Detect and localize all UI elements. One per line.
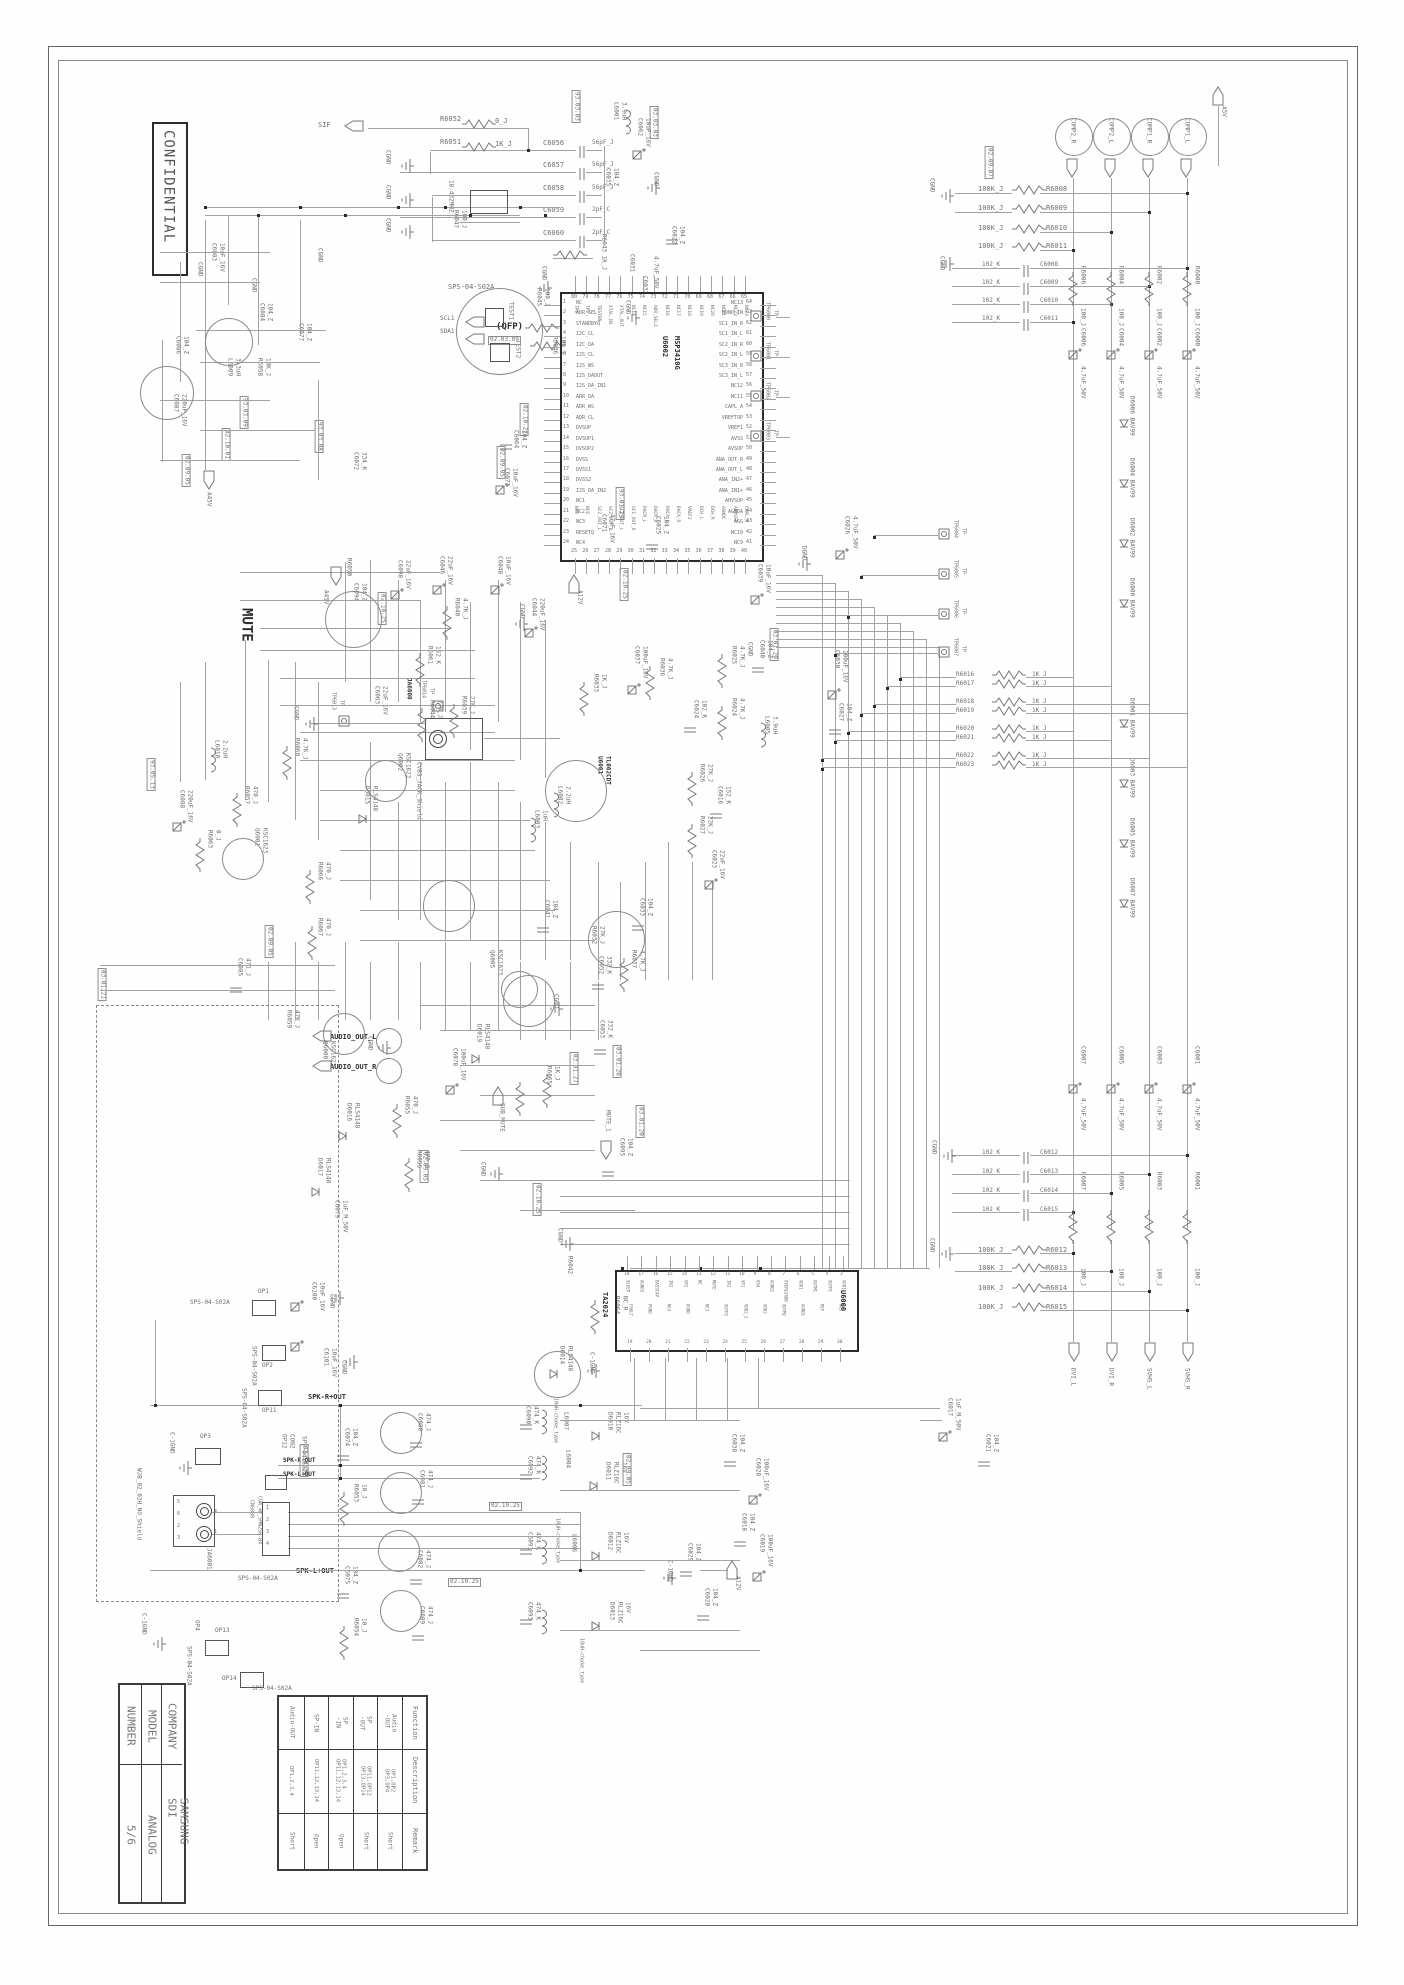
wire: [1030, 1155, 1187, 1156]
pin-stub: [641, 1256, 642, 1270]
component-label: 100_J: [1079, 308, 1086, 326]
resistor-icon: [1182, 272, 1192, 306]
diode-icon: [1118, 778, 1130, 790]
component-label: 4.7uF_50V: [1193, 1098, 1200, 1131]
component-label: CGND: [250, 278, 257, 292]
component-label: VSA: [755, 1280, 759, 1287]
component-label: CGND: [479, 1162, 486, 1176]
component-label: 28: [799, 1340, 804, 1345]
wire: [952, 1174, 1020, 1175]
pin-stub: [760, 493, 776, 494]
component-circle: [200, 1530, 209, 1539]
ground-icon: [558, 1236, 574, 1252]
test-point-icon: [338, 715, 350, 727]
component-label: 53: [746, 415, 752, 421]
pin-stub: [700, 276, 701, 292]
component-label: NC6: [584, 506, 589, 514]
junction-dot: [299, 206, 302, 209]
component-circle: [365, 760, 407, 802]
component-label: 49: [746, 457, 752, 463]
component-label: SC2_OUT_R: [607, 506, 612, 530]
junction-dot: [469, 214, 472, 217]
wire: [776, 583, 835, 584]
wire: [1026, 758, 1149, 759]
component-label: C6072: [352, 452, 359, 470]
component-label: NC22: [732, 305, 737, 316]
component-label: C6031: [628, 254, 635, 272]
component-label: 38: [718, 549, 724, 555]
wire: [835, 740, 956, 741]
component-label: OUTM1: [812, 1280, 816, 1292]
pin-stub: [575, 276, 576, 292]
component-label: C6090: [524, 1406, 531, 1424]
pin-stub: [711, 558, 712, 574]
resistor-icon: [339, 1492, 349, 1526]
component-label: C6088: [178, 790, 185, 808]
date-stamp: 02.10.22: [520, 403, 529, 436]
component-circle: [378, 1530, 420, 1572]
pin-stub: [632, 276, 633, 292]
component-label: RLZ16C: [616, 1602, 623, 1624]
component-label: DVSS: [576, 458, 588, 464]
component-label: D6012: [606, 1532, 613, 1550]
ground-icon: [176, 1460, 192, 1476]
resistor-icon: [687, 772, 697, 806]
component-label: 9: [563, 383, 566, 389]
wire: [180, 682, 181, 782]
component-label: 56pF_J: [592, 140, 614, 147]
component-label: CGND: [384, 150, 391, 164]
component-label: 104_Z: [266, 303, 273, 321]
component-label: 22: [684, 1340, 689, 1345]
component-label: 104_Z: [182, 336, 189, 354]
pin-stub: [627, 1256, 628, 1270]
junction-dot: [873, 536, 876, 539]
polar-capacitor-icon: [627, 683, 641, 695]
signal-flag-icon: [600, 1140, 612, 1160]
component-label: NC23: [743, 305, 748, 316]
capacitor-icon: [734, 1540, 746, 1548]
wire: [776, 615, 887, 616]
component-label: 11: [725, 1272, 730, 1277]
component-label: 28: [605, 549, 611, 555]
resistor-icon: [1144, 272, 1154, 306]
component-label: VDD2: [762, 1304, 766, 1314]
resistor-icon: [282, 746, 292, 780]
junction-dot: [519, 206, 522, 209]
pin-stub: [620, 276, 621, 292]
wire: [955, 212, 1012, 213]
component-label: OUTP1: [827, 1280, 831, 1292]
component-label: CGND: [384, 185, 391, 199]
date-stamp: 93.03.03: [572, 90, 581, 123]
component-label: 27: [594, 549, 600, 555]
resistor-icon: [339, 1626, 349, 1660]
component-label: NC16: [664, 305, 669, 316]
component-label: 0_J: [214, 830, 221, 841]
pin-stub: [586, 276, 587, 292]
component-label: CGND: [930, 1140, 937, 1154]
pin-stub: [544, 326, 560, 327]
component-label: 72: [662, 295, 668, 301]
resistor-icon: [542, 1074, 552, 1108]
resistor-icon: [1012, 224, 1046, 234]
pin-stub: [700, 558, 701, 574]
component-label: DVSUP: [576, 426, 591, 432]
component-label: SVHS_R: [1183, 1368, 1190, 1390]
wire: [498, 580, 499, 722]
pin-stub: [656, 1256, 657, 1270]
resistor-icon: [1012, 1302, 1046, 1312]
component-label: VREF2: [686, 506, 691, 520]
component-label: R6033: [592, 674, 599, 692]
pin-stub: [734, 558, 735, 574]
component-circle: [325, 591, 382, 648]
wire: [1026, 713, 1187, 714]
component-label: 3: [840, 1272, 843, 1277]
component-label: VP1: [740, 1280, 744, 1287]
pin-stub: [598, 558, 599, 574]
wire: [560, 1228, 850, 1229]
pin-stub: [598, 276, 599, 292]
component-label: 55: [746, 394, 752, 400]
junction-dot: [527, 149, 530, 152]
component-label: R6023: [956, 762, 974, 769]
component-label: 17: [563, 467, 569, 473]
polar-capacitor-icon: [752, 1570, 766, 1582]
component-label: R6054: [352, 1618, 359, 1636]
ground-icon: [584, 1363, 600, 1379]
component-box: [240, 1672, 264, 1688]
pin-stub: [760, 441, 776, 442]
component-label: 4.7uF_50V: [1079, 1098, 1086, 1131]
capacitor-icon: [537, 926, 549, 934]
diode-icon: [470, 1053, 482, 1065]
junction-dot: [1110, 231, 1113, 234]
component-label: 1uF_M_50V: [341, 1200, 348, 1233]
component-circle: [1131, 118, 1169, 156]
component-label: NC9: [734, 541, 743, 547]
wire: [1040, 1271, 1111, 1272]
component-label: DACA_R: [675, 506, 680, 522]
capacitor-icon: [520, 1548, 532, 1556]
component-label: 29: [818, 1340, 823, 1345]
component-label: R6001: [1193, 1172, 1200, 1190]
resistor-icon: [515, 1082, 525, 1116]
component-label: AGND3: [639, 1280, 643, 1292]
diode-icon: [1118, 898, 1130, 910]
capacitor-icon: [752, 666, 764, 674]
component-circle: [1055, 118, 1093, 156]
component-label: ADR_CL: [576, 416, 594, 422]
component-label: 74: [639, 295, 645, 301]
component-label: R6051: [440, 139, 461, 147]
wire: [861, 575, 938, 576]
component-label: 10uF_16V: [764, 564, 771, 593]
component-label: DVSS1: [576, 468, 591, 474]
pin-stub: [829, 1256, 830, 1270]
resistor-icon: [579, 682, 589, 716]
junction-dot: [579, 1404, 582, 1407]
polar-capacitor-icon: [1106, 348, 1120, 360]
pin-stub: [544, 347, 560, 348]
component-label: TP6006: [952, 600, 958, 618]
wire: [345, 942, 346, 1020]
component-label: NC5: [573, 506, 578, 514]
component-label: 25: [742, 1340, 747, 1345]
wire: [498, 782, 499, 960]
component-label: AGND1: [800, 1304, 804, 1316]
resistor-icon: [1012, 185, 1046, 195]
signal-flag-icon: [1106, 1342, 1118, 1362]
pin-stub: [544, 409, 560, 410]
pin-stub: [609, 276, 610, 292]
component-label: DACM_L: [641, 506, 646, 522]
wire: [560, 1244, 850, 1245]
wire: [1030, 1174, 1149, 1175]
resistor-icon: [992, 760, 1026, 770]
component-label: 4.7K_J: [738, 646, 745, 668]
wire: [776, 575, 822, 576]
junction-dot: [1186, 267, 1189, 270]
wire: [926, 639, 927, 1268]
component-label: 4.7uF_50V: [1193, 366, 1200, 399]
component-label: 1: [563, 300, 566, 306]
capacitor-icon: [1022, 1171, 1030, 1183]
ground-icon: [487, 1166, 503, 1182]
component-label: 75: [628, 295, 634, 301]
capacitor-icon: [1022, 283, 1030, 295]
inductor-icon: [527, 818, 537, 844]
ground-icon: [938, 188, 954, 204]
wire: [586, 240, 602, 241]
pin-stub: [760, 430, 776, 431]
component-label: R6057: [243, 786, 250, 804]
pin-stub: [760, 378, 776, 379]
component-label: 62: [746, 321, 752, 327]
component-label: TP6002: [764, 382, 770, 400]
pin-stub: [544, 514, 560, 515]
wire: [520, 1210, 635, 1211]
wire: [260, 650, 475, 651]
component-label: R6052: [440, 116, 461, 124]
polar-capacitor-icon: [827, 688, 841, 700]
component-label: VP2: [683, 1280, 687, 1287]
resistor-icon: [1182, 1210, 1192, 1244]
wire: [318, 380, 319, 480]
component-label: 4.7uF_50V: [1155, 366, 1162, 399]
pin-stub: [668, 1348, 669, 1362]
component-label: 51: [746, 436, 752, 442]
component-label: 70: [684, 295, 690, 301]
component-label: 37: [707, 549, 713, 555]
pin-stub: [654, 276, 655, 292]
pin-stub: [544, 336, 560, 337]
component-label: 1K_J: [553, 1066, 560, 1080]
component-circle: [205, 318, 253, 366]
component-label: 100K_J: [978, 1304, 1003, 1312]
component-label: AHVSST: [732, 506, 737, 522]
component-label: 474_J: [426, 1606, 433, 1624]
component-label: SC2_OUT_L: [596, 506, 601, 530]
capacitor-icon: [632, 924, 644, 932]
component-label: 100_J: [460, 210, 467, 228]
resistor-icon: [404, 1158, 414, 1192]
diode-icon: [1118, 718, 1130, 730]
component-label: R6047: [452, 210, 459, 228]
junction-dot: [834, 654, 837, 657]
component-label: 77: [605, 295, 611, 301]
schematic-page: CONFIDENTIAL COMPANYSAMSUNG SDIMODELANAL…: [0, 0, 1404, 1985]
pin-stub: [760, 503, 776, 504]
component-label: 7: [782, 1272, 785, 1277]
junction-dot: [821, 759, 824, 762]
pin-stub: [760, 326, 776, 327]
junction-dot: [860, 714, 863, 717]
wire: [360, 940, 595, 941]
wire: [630, 1268, 930, 1269]
wire: [874, 535, 938, 536]
component-label: R6019: [956, 708, 974, 715]
wire: [545, 620, 546, 778]
pin-stub: [711, 276, 712, 292]
component-label: Q6005: [488, 950, 495, 968]
wire: [835, 583, 836, 1268]
wire: [445, 942, 446, 1030]
component-label: C6016: [716, 786, 723, 804]
component-label: 102_K: [700, 700, 707, 718]
pin-stub: [760, 399, 776, 400]
pin-stub: [544, 472, 560, 473]
wire: [560, 1420, 740, 1421]
component-label: 7: [563, 363, 566, 369]
component-label: 104_Z: [694, 1543, 701, 1561]
wire: [100, 990, 335, 991]
wire: [712, 882, 713, 980]
component-label: C6000: [1193, 328, 1200, 346]
date-stamp: 03.01.27: [570, 1052, 579, 1085]
component-label: 48: [746, 467, 752, 473]
component-label: 42: [746, 530, 752, 536]
wire: [160, 282, 260, 283]
date-stamp: 03.01.20: [636, 1105, 645, 1138]
junction-dot: [821, 768, 824, 771]
pin-stub: [544, 399, 560, 400]
junction-dot: [1186, 1309, 1189, 1312]
pin-stub: [757, 1256, 758, 1270]
ground-icon: [302, 716, 318, 732]
signal-flag-icon: [568, 574, 580, 594]
ground-icon: [150, 1636, 166, 1652]
diode-icon: [548, 1368, 560, 1380]
component-label: R6061: [426, 646, 433, 664]
pin-stub: [760, 420, 776, 421]
component-label: 10_J: [360, 1618, 367, 1632]
pin-stub: [544, 451, 560, 452]
wire: [460, 1150, 595, 1151]
component-label: SC1_IN_L: [719, 332, 743, 338]
component-label: 29: [616, 549, 622, 555]
pin-stub: [706, 1348, 707, 1362]
ground-icon: [398, 192, 414, 208]
pin-stub: [745, 1348, 746, 1362]
component-label: 1K_J: [495, 141, 512, 149]
component-label: 4: [563, 331, 566, 337]
resistor-icon: [717, 706, 727, 740]
resistor-icon: [1012, 1245, 1046, 1255]
component-label: SDA1: [440, 329, 454, 336]
ground-icon: [940, 1148, 956, 1164]
resistor-icon: [645, 666, 655, 700]
component-label: 61: [746, 331, 752, 337]
component-label: AGND2: [769, 1280, 773, 1292]
component-circle: [1093, 118, 1131, 156]
component-label: SC3_IN_L: [719, 374, 743, 380]
component-label: NC4: [576, 541, 585, 547]
component-label: 100K_J: [978, 1285, 1003, 1293]
resistor-icon: [1106, 272, 1116, 306]
component-circle: [376, 1058, 402, 1084]
component-label: NC5: [838, 1304, 842, 1311]
pin-stub: [544, 388, 560, 389]
component-label: 8: [563, 373, 566, 379]
component-label: SC2_IN_L: [719, 353, 743, 359]
component-label: R6067: [316, 918, 323, 936]
wire: [758, 1358, 759, 1408]
resistor-icon: [1068, 1210, 1078, 1244]
component-label: DGND: [685, 1304, 689, 1314]
component-label: VDD2_2: [743, 1304, 747, 1318]
test-point-icon: [432, 700, 444, 712]
component-label: 152_K: [724, 786, 731, 804]
component-label: RLS4148: [353, 1103, 360, 1128]
signal-flag-icon: [330, 566, 342, 586]
wire: [1111, 1240, 1112, 1342]
component-label: 24: [563, 540, 569, 546]
component-label: 100K_J: [978, 225, 1003, 233]
component-label: 471_J: [244, 958, 251, 976]
capacitor-icon: [724, 1460, 736, 1468]
date-stamp: 02.10.25: [448, 1578, 481, 1587]
resistor-icon: [1012, 204, 1046, 214]
wire: [1026, 740, 1111, 741]
component-label: OP4: [193, 1620, 200, 1631]
component-label: MUTE: [711, 1280, 715, 1290]
wire: [484, 738, 560, 739]
component-circle: [200, 1507, 209, 1516]
component-label: 18: [563, 477, 569, 483]
component-label: CGND: [384, 218, 391, 232]
component-label: ADR_DA: [576, 395, 594, 401]
component-label: NC12: [731, 384, 743, 390]
wire: [1040, 232, 1111, 233]
component-label: CGND: [540, 266, 547, 280]
wire: [570, 962, 571, 1040]
date-stamp: 02.09.07: [985, 146, 994, 179]
wire: [913, 631, 914, 1268]
junction-dot: [834, 741, 837, 744]
component-label: DVSS2: [576, 478, 591, 484]
component-label: C6003: [1155, 1046, 1162, 1064]
signal-flag-icon: [465, 333, 485, 345]
component-label: R6055: [403, 1096, 410, 1114]
diode-icon: [310, 1186, 322, 1198]
pin-stub: [760, 315, 776, 316]
component-label: 474_J: [426, 1470, 433, 1488]
component-label: D6013: [608, 1602, 615, 1620]
pin-stub: [544, 482, 560, 483]
pin-stub: [544, 378, 560, 379]
